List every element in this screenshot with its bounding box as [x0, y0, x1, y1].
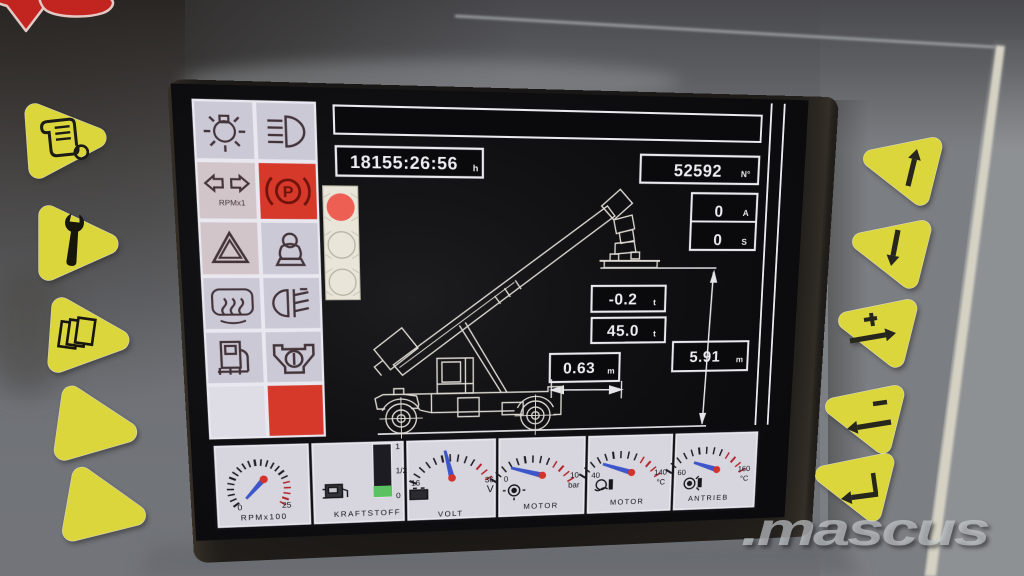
svg-text:MOTOR: MOTOR: [610, 497, 644, 506]
svg-text:m: m: [607, 367, 615, 376]
svg-text:45.0: 45.0: [607, 322, 639, 340]
svg-text:VOLT: VOLT: [438, 509, 464, 518]
svg-text:10: 10: [570, 471, 579, 480]
svg-text:A: A: [743, 209, 750, 218]
svg-text:MOTOR: MOTOR: [523, 501, 558, 510]
svg-text:5.91: 5.91: [689, 348, 721, 366]
svg-text:1: 1: [395, 442, 400, 451]
svg-text:RPMx1: RPMx1: [219, 198, 246, 208]
svg-text:0: 0: [396, 492, 401, 501]
svg-text:0: 0: [504, 475, 508, 484]
svg-text:°C: °C: [656, 478, 665, 487]
svg-text:0.63: 0.63: [563, 359, 595, 377]
svg-text:25: 25: [282, 501, 292, 510]
svg-text:°C: °C: [740, 474, 749, 483]
svg-text:0: 0: [713, 231, 722, 249]
svg-text:160: 160: [738, 465, 751, 474]
svg-text:0: 0: [237, 504, 242, 513]
svg-text:N°: N°: [741, 170, 751, 180]
svg-text:h: h: [473, 164, 479, 174]
svg-text:0: 0: [714, 202, 723, 220]
svg-text:16: 16: [411, 479, 420, 488]
svg-text:18155:26:56: 18155:26:56: [350, 152, 458, 174]
svg-text:V: V: [487, 483, 495, 494]
svg-text:60: 60: [677, 469, 686, 478]
svg-text:-0.2: -0.2: [609, 290, 638, 308]
svg-text:52592: 52592: [674, 161, 723, 181]
svg-text:S: S: [741, 238, 747, 247]
svg-text:bar: bar: [568, 481, 580, 490]
svg-text:40: 40: [591, 471, 600, 480]
svg-text:P: P: [283, 183, 294, 201]
svg-text:m: m: [736, 356, 744, 365]
svg-text:1/2: 1/2: [396, 466, 408, 475]
svg-text:ANTRIEB: ANTRIEB: [688, 493, 729, 502]
svg-text:140: 140: [654, 468, 667, 477]
